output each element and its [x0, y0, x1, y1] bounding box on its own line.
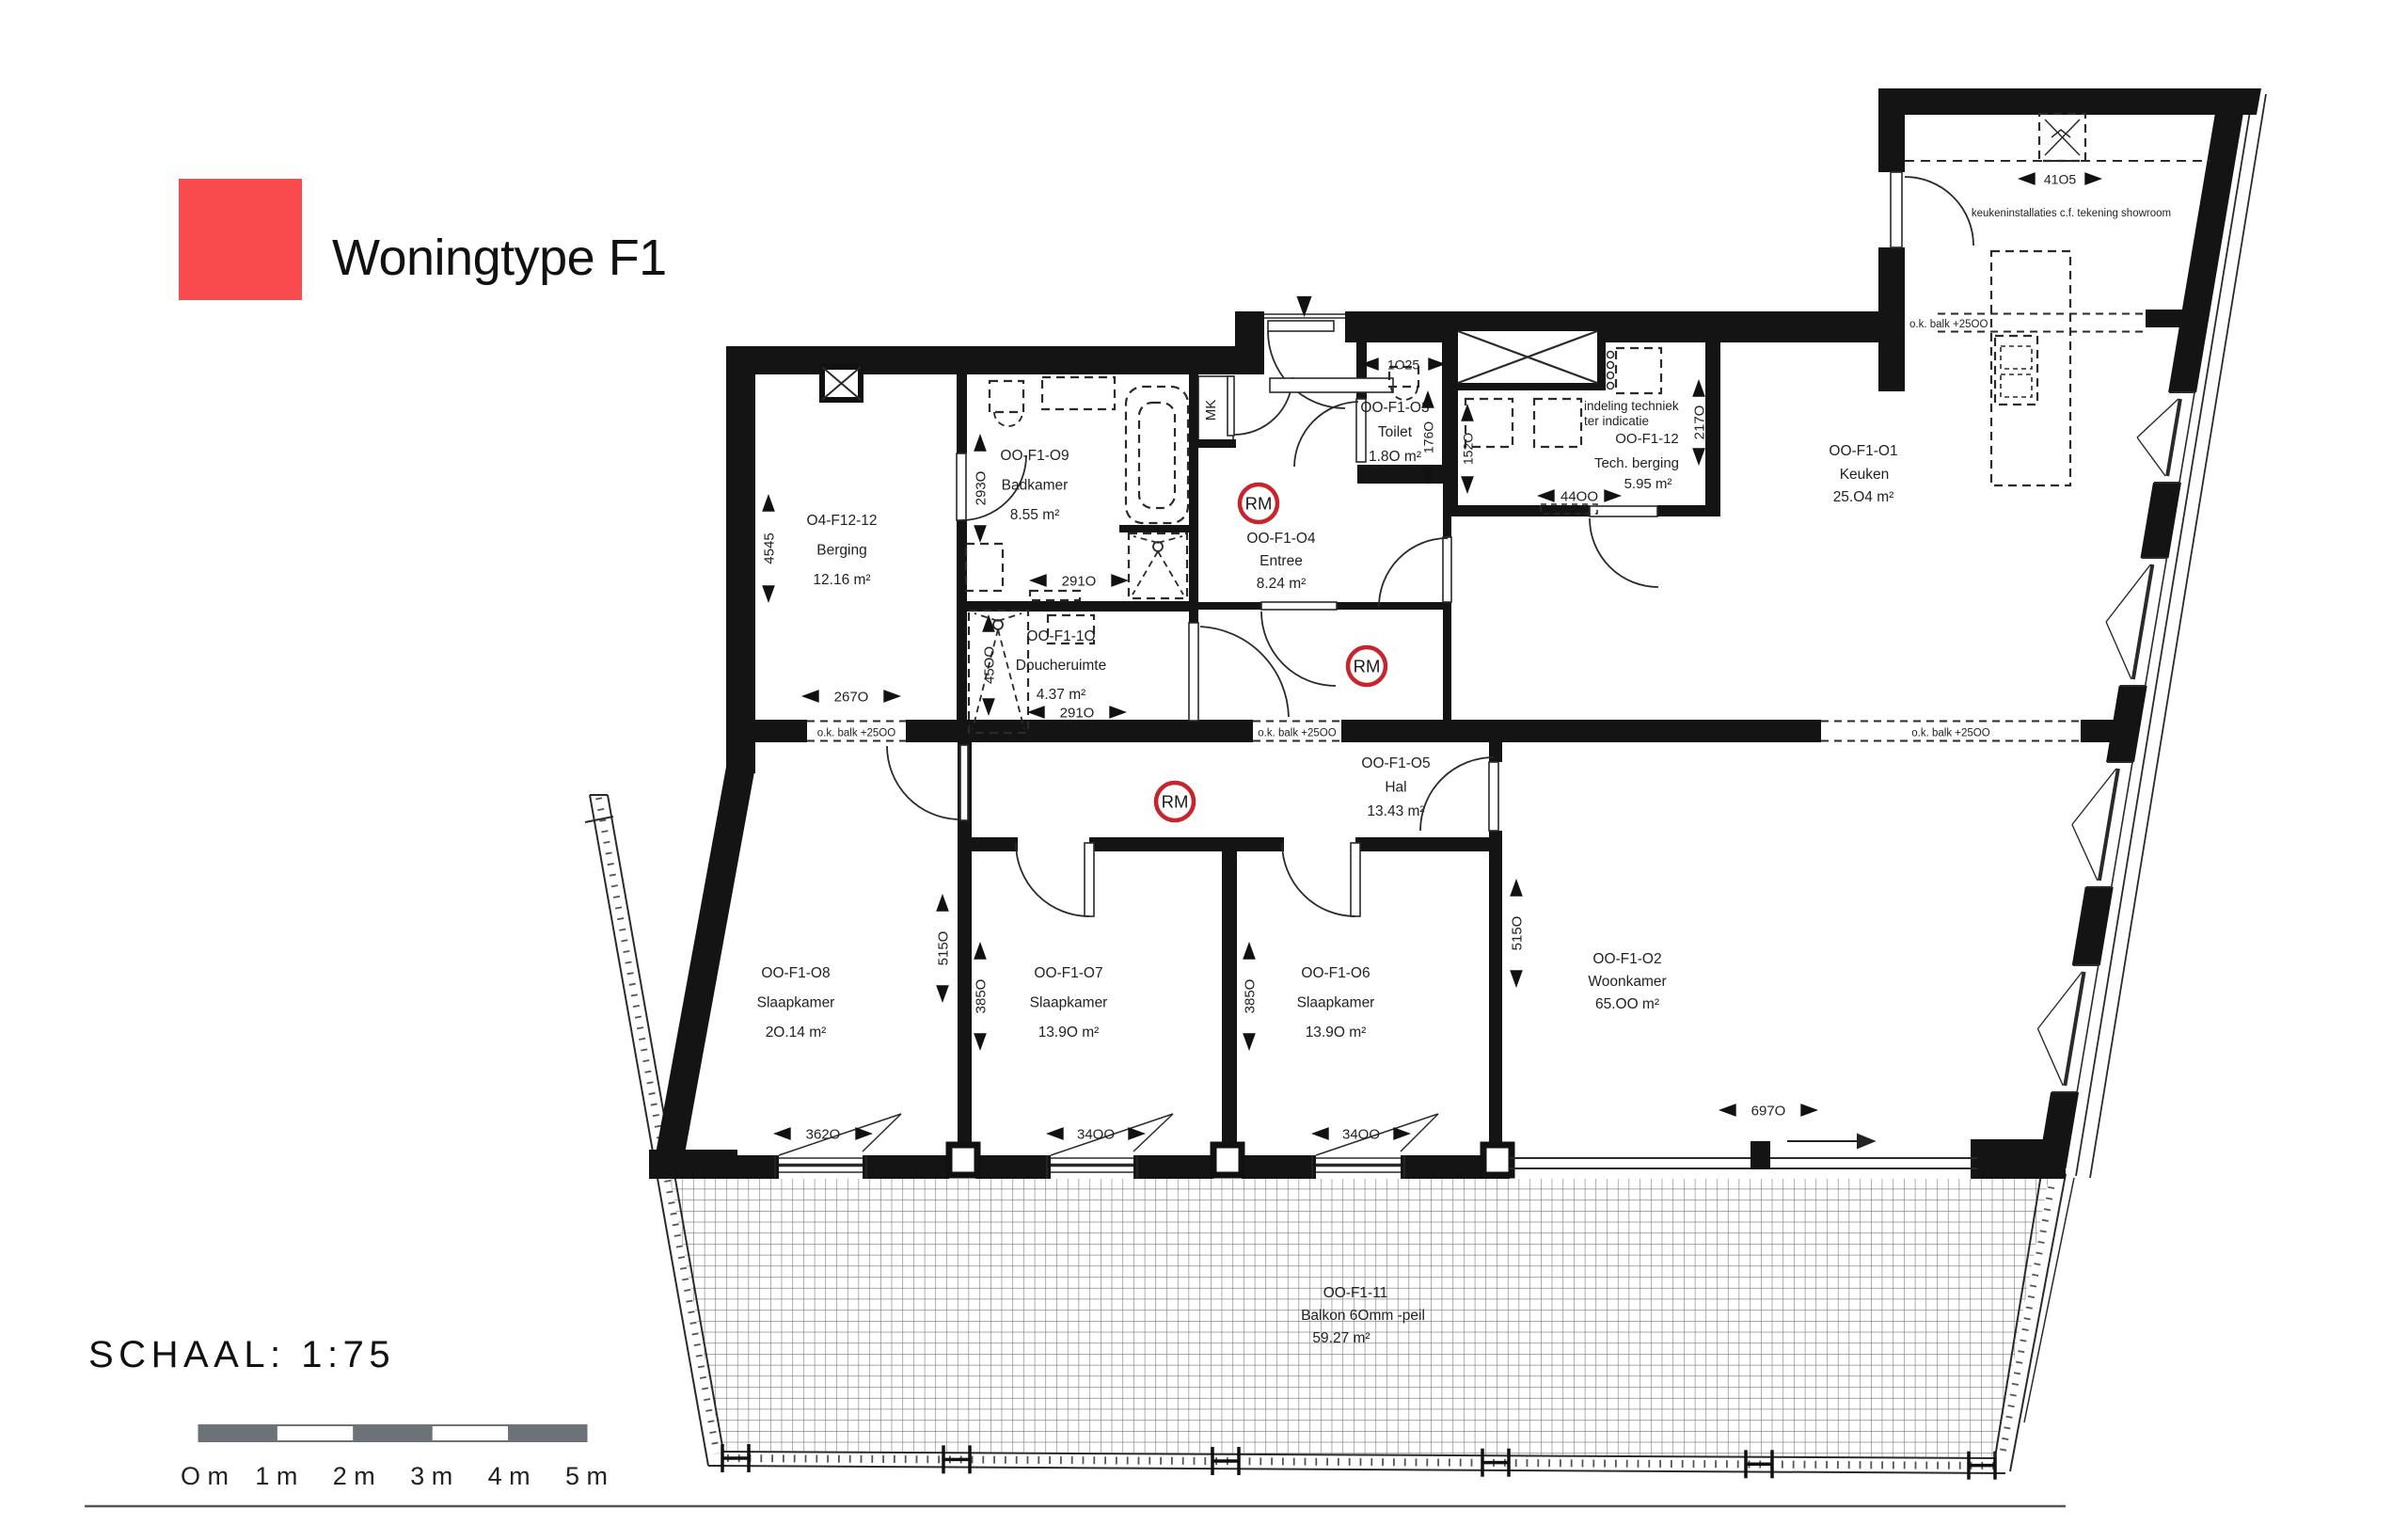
svg-text:OO-F1-O8: OO-F1-O8 [761, 965, 830, 981]
svg-text:Hal: Hal [1385, 780, 1406, 796]
svg-text:Entree: Entree [1259, 553, 1303, 569]
svg-text:Tech. berging: Tech. berging [1594, 455, 1679, 471]
svg-text:Doucheruimte: Doucheruimte [1016, 658, 1107, 674]
svg-text:Slaapkamer: Slaapkamer [757, 995, 835, 1011]
svg-text:5 m: 5 m [565, 1462, 608, 1490]
svg-text:indeling techniek: indeling techniek [1584, 399, 1679, 413]
svg-text:SCHAAL: 1:75: SCHAAL: 1:75 [88, 1334, 395, 1375]
svg-text:o.k. balk +25OO: o.k. balk +25OO [1909, 319, 1988, 330]
svg-text:keukeninstallaties c.f. tekeni: keukeninstallaties c.f. tekening showroo… [1972, 208, 2171, 219]
svg-text:59.27 m²: 59.27 m² [1312, 1330, 1370, 1346]
svg-text:25.O4 m²: 25.O4 m² [1833, 489, 1894, 505]
svg-text:Badkamer: Badkamer [1002, 478, 1069, 494]
svg-text:o.k. balk +25OO: o.k. balk +25OO [1911, 728, 1989, 739]
svg-text:OO-F1-12: OO-F1-12 [1615, 431, 1679, 447]
svg-text:2 m: 2 m [333, 1462, 375, 1490]
svg-text:515O: 515O [936, 931, 952, 966]
svg-text:4545: 4545 [762, 532, 778, 564]
svg-text:MK: MK [1203, 400, 1219, 421]
svg-text:217O: 217O [1692, 405, 1708, 440]
svg-text:3 m: 3 m [410, 1462, 452, 1490]
svg-text:OO-F1-O5: OO-F1-O5 [1361, 755, 1430, 771]
svg-text:RM: RM [1245, 494, 1273, 514]
svg-text:OO-F1-O7: OO-F1-O7 [1034, 965, 1102, 981]
svg-text:41O5: 41O5 [2044, 172, 2076, 187]
svg-text:12.16 m²: 12.16 m² [813, 572, 870, 588]
svg-text:o.k. balk +25OO: o.k. balk +25OO [817, 728, 895, 739]
svg-text:293O: 293O [974, 471, 990, 506]
svg-text:Balkon 6Omm -peil: Balkon 6Omm -peil [1301, 1308, 1425, 1324]
svg-text:OO-F1-O1: OO-F1-O1 [1829, 443, 1897, 459]
svg-text:Berging: Berging [816, 543, 866, 559]
svg-text:OO-F1-O2: OO-F1-O2 [1592, 951, 1661, 967]
svg-text:o.k. balk +25OO: o.k. balk +25OO [1258, 728, 1336, 739]
svg-text:1 m: 1 m [255, 1462, 297, 1490]
svg-text:4.37 m²: 4.37 m² [1037, 687, 1086, 703]
svg-text:34OO: 34OO [1077, 1127, 1115, 1143]
svg-text:44OO: 44OO [1560, 489, 1598, 505]
svg-text:1O25: 1O25 [1387, 357, 1419, 373]
svg-text:Keuken: Keuken [1840, 467, 1890, 483]
svg-text:RM: RM [1354, 657, 1381, 676]
svg-text:515O: 515O [1510, 916, 1526, 951]
svg-text:5.95 m²: 5.95 m² [1624, 476, 1672, 492]
svg-text:O m: O m [181, 1462, 229, 1490]
svg-text:385O: 385O [974, 979, 990, 1014]
svg-text:13.43 m²: 13.43 m² [1367, 803, 1424, 819]
svg-text:34OO: 34OO [1342, 1127, 1380, 1143]
svg-text:OO-F1-O4: OO-F1-O4 [1246, 531, 1316, 547]
svg-text:8.55 m²: 8.55 m² [1010, 507, 1060, 523]
svg-text:291O: 291O [1062, 574, 1097, 590]
svg-text:Slaapkamer: Slaapkamer [1297, 995, 1375, 1011]
svg-text:OO-F1-O9: OO-F1-O9 [1000, 448, 1069, 464]
svg-text:Woningtype F1: Woningtype F1 [332, 230, 667, 286]
svg-text:45OO: 45OO [982, 646, 998, 684]
svg-text:65.OO m²: 65.OO m² [1595, 996, 1659, 1012]
svg-text:176O: 176O [1421, 421, 1436, 453]
svg-text:4 m: 4 m [488, 1462, 531, 1490]
svg-text:2O.14 m²: 2O.14 m² [766, 1025, 827, 1040]
svg-text:OO-F1-O6: OO-F1-O6 [1301, 965, 1370, 981]
svg-text:Woonkamer: Woonkamer [1588, 974, 1666, 990]
svg-text:291O: 291O [1060, 706, 1095, 722]
svg-text:8.24 m²: 8.24 m² [1257, 576, 1307, 592]
svg-text:697O: 697O [1751, 1104, 1786, 1120]
svg-text:385O: 385O [1243, 979, 1259, 1014]
svg-text:Slaapkamer: Slaapkamer [1030, 995, 1108, 1011]
svg-text:OO-F1-1O: OO-F1-1O [1026, 628, 1095, 644]
svg-text:362O: 362O [806, 1127, 841, 1143]
svg-text:OO-F1-11: OO-F1-11 [1323, 1285, 1388, 1301]
svg-text:152O: 152O [1461, 433, 1476, 465]
svg-text:ter indicatie: ter indicatie [1584, 414, 1649, 428]
svg-text:1.8O m²: 1.8O m² [1369, 449, 1421, 465]
svg-text:OO-F1-O3: OO-F1-O3 [1360, 400, 1429, 416]
svg-text:O4-F12-12: O4-F12-12 [807, 513, 878, 529]
svg-text:13.9O m²: 13.9O m² [1306, 1025, 1367, 1040]
svg-text:RM: RM [1162, 792, 1189, 812]
svg-text:267O: 267O [834, 690, 869, 706]
svg-text:13.9O m²: 13.9O m² [1038, 1025, 1100, 1040]
svg-text:Toilet: Toilet [1378, 424, 1413, 440]
